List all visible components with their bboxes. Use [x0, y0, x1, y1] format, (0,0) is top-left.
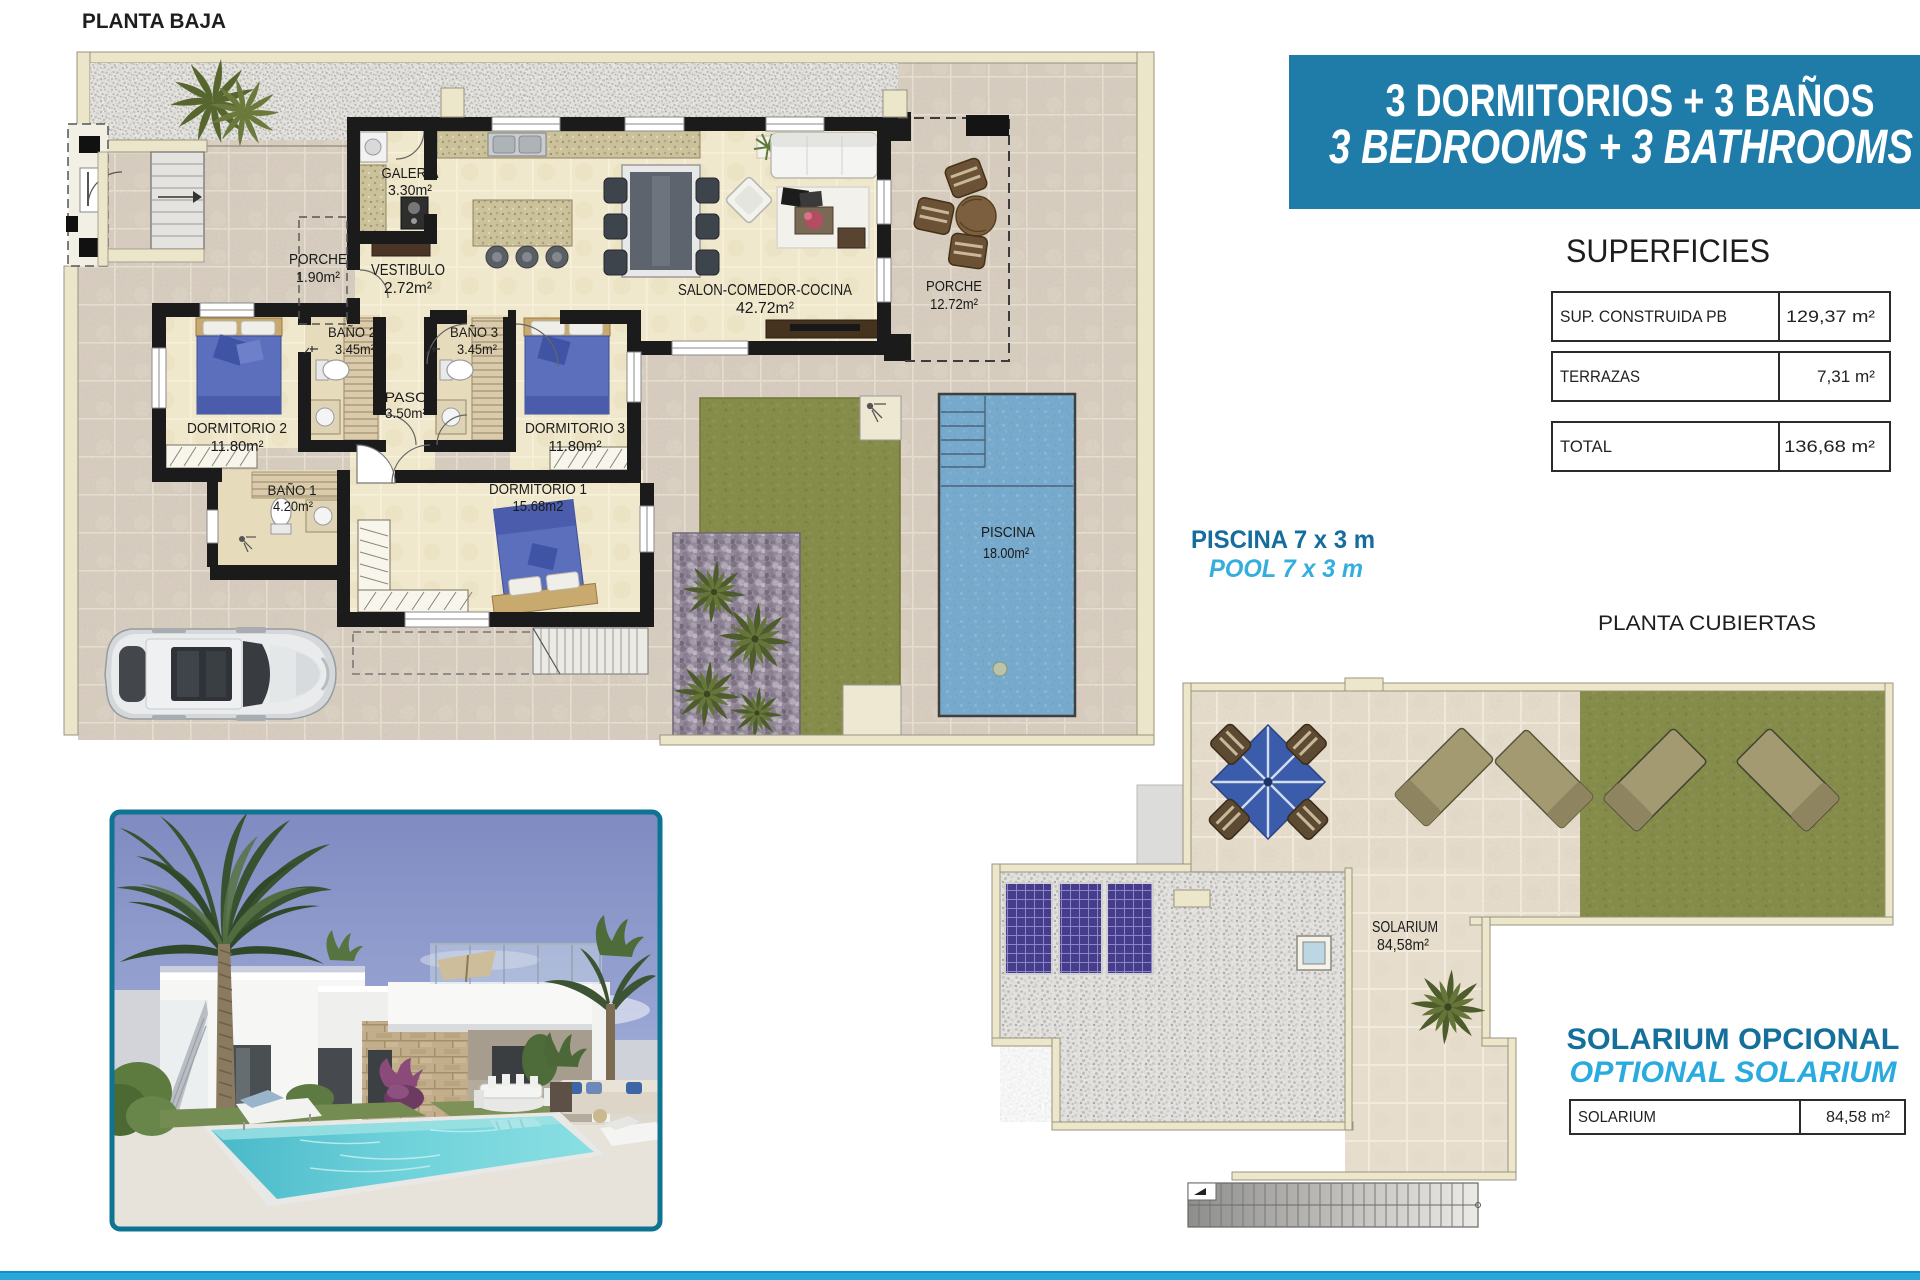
svg-text:POOL 7 x 3 m: POOL 7 x 3 m: [1209, 555, 1363, 583]
svg-text:DORMITORIO 3: DORMITORIO 3: [525, 420, 625, 437]
svg-text:7,31 m²: 7,31 m²: [1817, 367, 1875, 386]
svg-text:GALERIA: GALERIA: [382, 165, 439, 182]
svg-text:12.72m²: 12.72m²: [930, 296, 978, 313]
svg-text:SUPERFICIES: SUPERFICIES: [1566, 233, 1770, 269]
svg-text:3.45m²: 3.45m²: [335, 341, 375, 357]
svg-text:PLANTA BAJA: PLANTA BAJA: [82, 10, 226, 33]
svg-text:3.30m²: 3.30m²: [388, 182, 432, 199]
svg-text:18.00m²: 18.00m²: [983, 545, 1029, 562]
svg-text:PASO: PASO: [385, 389, 428, 405]
svg-text:DORMITORIO 2: DORMITORIO 2: [187, 420, 287, 437]
svg-text:PISCINA 7 x 3 m: PISCINA 7 x 3 m: [1191, 526, 1375, 554]
svg-text:SOLARIUM: SOLARIUM: [1578, 1109, 1656, 1126]
svg-text:11.80m²: 11.80m²: [211, 438, 264, 455]
svg-text:136,68 m²: 136,68 m²: [1784, 437, 1875, 456]
svg-text:PORCHE: PORCHE: [926, 278, 982, 295]
svg-text:BAÑO 3: BAÑO 3: [450, 324, 498, 340]
svg-text:3.50m²: 3.50m²: [385, 405, 427, 421]
svg-text:3.45m²: 3.45m²: [457, 341, 497, 357]
svg-text:11.80m²: 11.80m²: [549, 438, 602, 455]
svg-text:SOLARIUM: SOLARIUM: [1372, 919, 1438, 936]
svg-text:2.72m²: 2.72m²: [384, 280, 433, 297]
svg-text:PORCHE: PORCHE: [289, 251, 347, 268]
svg-text:TERRAZAS: TERRAZAS: [1560, 367, 1640, 386]
svg-text:84,58m²: 84,58m²: [1377, 937, 1430, 954]
svg-text:42.72m²: 42.72m²: [736, 300, 795, 317]
svg-text:BAÑO 1: BAÑO 1: [268, 482, 317, 498]
svg-text:TOTAL: TOTAL: [1560, 437, 1612, 456]
svg-text:VESTIBULO: VESTIBULO: [371, 262, 445, 279]
svg-text:129,37 m²: 129,37 m²: [1786, 307, 1875, 326]
svg-text:BAÑO 2: BAÑO 2: [328, 324, 376, 340]
svg-text:84,58 m²: 84,58 m²: [1826, 1109, 1891, 1126]
svg-text:4.20m²: 4.20m²: [273, 498, 313, 514]
svg-text:OPTIONAL SOLARIUM: OPTIONAL SOLARIUM: [1570, 1056, 1898, 1089]
svg-text:SUP. CONSTRUIDA PB: SUP. CONSTRUIDA PB: [1560, 307, 1727, 326]
svg-text:3 DORMITORIOS + 3 BAÑOS: 3 DORMITORIOS + 3 BAÑOS: [1386, 75, 1875, 126]
svg-text:PLANTA CUBIERTAS: PLANTA CUBIERTAS: [1598, 612, 1816, 635]
svg-text:DORMITORIO 1: DORMITORIO 1: [489, 481, 587, 498]
svg-text:1.90m²: 1.90m²: [296, 269, 340, 286]
svg-text:SOLARIUM OPCIONAL: SOLARIUM OPCIONAL: [1567, 1023, 1900, 1056]
svg-text:PISCINA: PISCINA: [981, 524, 1035, 541]
svg-text:3 BEDROOMS + 3 BATHROOMS: 3 BEDROOMS + 3 BATHROOMS: [1329, 121, 1913, 174]
svg-text:15.68m2: 15.68m2: [513, 498, 564, 515]
svg-text:SALON-COMEDOR-COCINA: SALON-COMEDOR-COCINA: [678, 282, 852, 299]
